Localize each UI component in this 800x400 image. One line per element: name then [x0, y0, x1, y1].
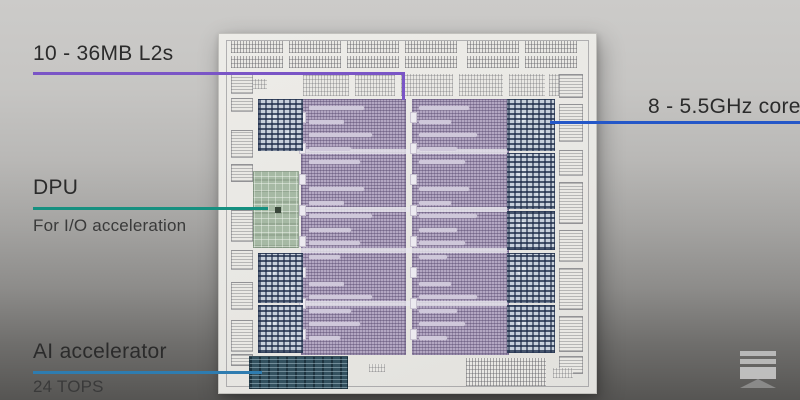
l2-edge-tab — [410, 143, 417, 154]
io-block — [231, 41, 283, 53]
l2-sram-slot — [419, 201, 451, 205]
l2-sram-slot — [309, 309, 351, 313]
cpu-core-block — [507, 153, 555, 209]
l2-sram-slot — [419, 160, 465, 164]
sth-logo-bar — [740, 351, 776, 356]
bottom-logic-block — [553, 368, 573, 378]
bottom-logic-block — [466, 358, 546, 386]
l2-sram-slot — [309, 106, 364, 110]
l2-sram-slot — [309, 160, 360, 164]
edge-io-block — [231, 250, 253, 270]
logic-block — [401, 74, 453, 96]
ai-subtitle: 24 TOPS — [33, 377, 104, 397]
l2-edge-tab — [299, 174, 306, 185]
io-block — [467, 41, 519, 53]
bottom-logic-block — [369, 364, 385, 372]
logic-block — [509, 74, 545, 96]
l2-separator — [301, 248, 507, 253]
l2-sram-slot — [419, 228, 457, 232]
logic-block — [303, 74, 349, 96]
l2-sram-slot — [419, 106, 469, 110]
edge-io-block — [231, 282, 253, 310]
io-block — [289, 41, 341, 53]
l2-sram-slot — [309, 120, 344, 124]
edge-io-block — [231, 74, 253, 94]
edge-io-block — [231, 320, 253, 352]
l2-sram-slot — [309, 214, 372, 218]
l2-sram-slot — [419, 241, 465, 245]
l2-label: 10 - 36MB L2s — [33, 42, 173, 66]
l2-edge-tab — [410, 267, 417, 278]
io-block — [405, 41, 457, 53]
l2-edge-tab — [299, 205, 306, 216]
cores-annotation-line — [550, 121, 800, 124]
video-frame: 10 - 36MB L2s 8 - 5.5GHz cores DPU For I… — [0, 0, 800, 400]
cpu-core-block — [258, 253, 303, 303]
edge-io-block — [231, 130, 253, 158]
l2-edge-tab — [299, 236, 306, 247]
io-block — [467, 56, 519, 68]
l2-sram-slot — [419, 255, 447, 259]
l2-sram-slot — [309, 201, 344, 205]
io-block — [525, 56, 577, 68]
dpu-label: DPU — [33, 176, 78, 200]
edge-io-block — [559, 182, 583, 224]
l2-annotation-line-vertical — [402, 72, 405, 100]
l2-edge-tab — [410, 205, 417, 216]
edge-io-block — [559, 230, 583, 262]
dpu-annotation-line — [33, 207, 268, 210]
edge-io-block — [559, 74, 583, 98]
sth-logo-chevron-icon — [740, 379, 776, 388]
l2-edge-tab — [410, 236, 417, 247]
cpu-core-block — [507, 253, 555, 303]
l2-sram-slot — [309, 241, 360, 245]
l2-edge-tab — [410, 112, 417, 123]
l2-sram-slot — [419, 214, 477, 218]
edge-io-block — [559, 316, 583, 352]
l2-sram-slot — [419, 120, 451, 124]
l2-sram-slot — [419, 336, 447, 340]
l2-sram-slot — [309, 322, 360, 326]
l2-separator — [301, 207, 507, 212]
l2-sram-slot — [419, 322, 465, 326]
dpu-detail — [275, 207, 281, 213]
edge-io-block — [231, 164, 253, 182]
l2-separator — [301, 301, 507, 306]
ai-label: AI accelerator — [33, 340, 167, 364]
cpu-core-block — [507, 99, 555, 151]
io-block — [347, 41, 399, 53]
l2-sram-slot — [309, 295, 372, 299]
sth-logo-block — [740, 367, 776, 379]
edge-io-block — [231, 98, 253, 112]
l2-sram-slot — [309, 147, 351, 151]
cpu-core-block — [258, 305, 303, 353]
l2-sram-slot — [419, 309, 457, 313]
dpu-subtitle: For I/O acceleration — [33, 216, 186, 236]
l2-sram-slot — [309, 255, 340, 259]
l2-sram-slot — [419, 187, 469, 191]
io-block — [347, 56, 399, 68]
io-block — [231, 56, 283, 68]
l2-sram-slot — [419, 133, 477, 137]
logic-block — [459, 74, 503, 96]
l2-sram-slot — [309, 282, 344, 286]
io-block — [525, 41, 577, 53]
edge-io-block — [559, 268, 583, 310]
edge-io-block — [231, 210, 253, 242]
l2-edge-tab — [410, 298, 417, 309]
cpu-core-block — [258, 99, 303, 151]
l2-sram-slot — [419, 282, 451, 286]
sth-logo-bar — [740, 359, 776, 364]
logic-block — [355, 74, 395, 96]
io-block — [405, 56, 457, 68]
l2-sram-slot — [309, 133, 372, 137]
l2-sram-slot — [419, 295, 477, 299]
sth-logo — [740, 351, 776, 388]
ai-annotation-line — [33, 371, 262, 374]
cores-label: 8 - 5.5GHz cores — [648, 95, 800, 119]
ai-accelerator-block — [249, 356, 348, 389]
io-block — [289, 56, 341, 68]
edge-io-block — [559, 150, 583, 176]
l2-sram-slot — [309, 187, 364, 191]
l2-edge-tab — [410, 174, 417, 185]
cpu-core-block — [507, 305, 555, 353]
cpu-core-block — [507, 211, 555, 250]
l2-edge-tab — [410, 329, 417, 340]
chip-die-photo — [218, 33, 597, 394]
l2-sram-slot — [309, 336, 340, 340]
l2-sram-slot — [309, 228, 351, 232]
l2-annotation-line — [33, 72, 405, 75]
l2-sram-slot — [419, 147, 457, 151]
